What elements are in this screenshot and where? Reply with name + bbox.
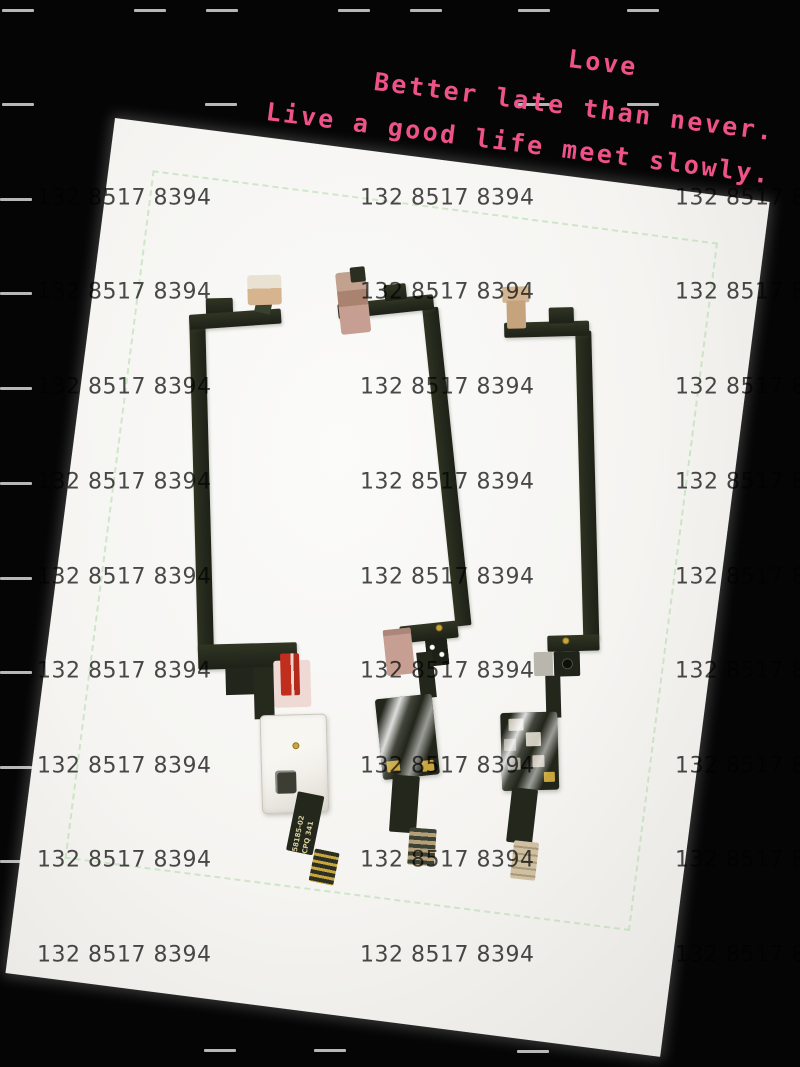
watermark-text: 132 8517 8394 bbox=[37, 375, 211, 400]
watermark-text: 132 8517 8394 bbox=[360, 280, 534, 305]
watermark-text: 132 8517 8394 bbox=[360, 186, 534, 211]
watermark-text: 132 8517 8394 bbox=[360, 659, 534, 684]
watermark-text: 132 8517 8394 bbox=[360, 754, 534, 779]
watermark-text: 132 8517 8394 bbox=[675, 470, 800, 495]
watermark-text: 132 8517 8394 bbox=[37, 848, 211, 873]
watermark-text: 132 8517 8394 bbox=[37, 470, 211, 495]
watermark-text: 132 8517 8394 bbox=[675, 848, 800, 873]
watermark-text: 132 8517 8394 bbox=[37, 280, 211, 305]
watermark-text: 132 8517 8394 bbox=[675, 280, 800, 305]
watermark-text: 132 8517 8394 bbox=[37, 659, 211, 684]
watermark-text: 132 8517 8394 bbox=[37, 943, 211, 968]
watermark-text: 132 8517 8394 bbox=[360, 375, 534, 400]
watermark-text: 132 8517 8394 bbox=[37, 754, 211, 779]
watermark-layer: 132 8517 8394132 8517 8394132 8517 83941… bbox=[0, 0, 800, 1067]
watermark-text: 132 8517 8394 bbox=[360, 848, 534, 873]
watermark-text: 132 8517 8394 bbox=[675, 659, 800, 684]
watermark-text: 132 8517 8394 bbox=[675, 943, 800, 968]
watermark-text: 132 8517 8394 bbox=[360, 470, 534, 495]
watermark-text: 132 8517 8394 bbox=[675, 375, 800, 400]
watermark-text: 132 8517 8394 bbox=[360, 943, 534, 968]
watermark-text: 132 8517 8394 bbox=[37, 565, 211, 590]
watermark-text: 132 8517 8394 bbox=[675, 754, 800, 779]
product-photo-scene: 58185-02 CPQ 341 bbox=[0, 0, 800, 1067]
watermark-text: 132 8517 8394 bbox=[675, 565, 800, 590]
watermark-text: 132 8517 8394 bbox=[37, 186, 211, 211]
watermark-text: 132 8517 8394 bbox=[360, 565, 534, 590]
watermark-text: 132 8517 8394 bbox=[675, 186, 800, 211]
